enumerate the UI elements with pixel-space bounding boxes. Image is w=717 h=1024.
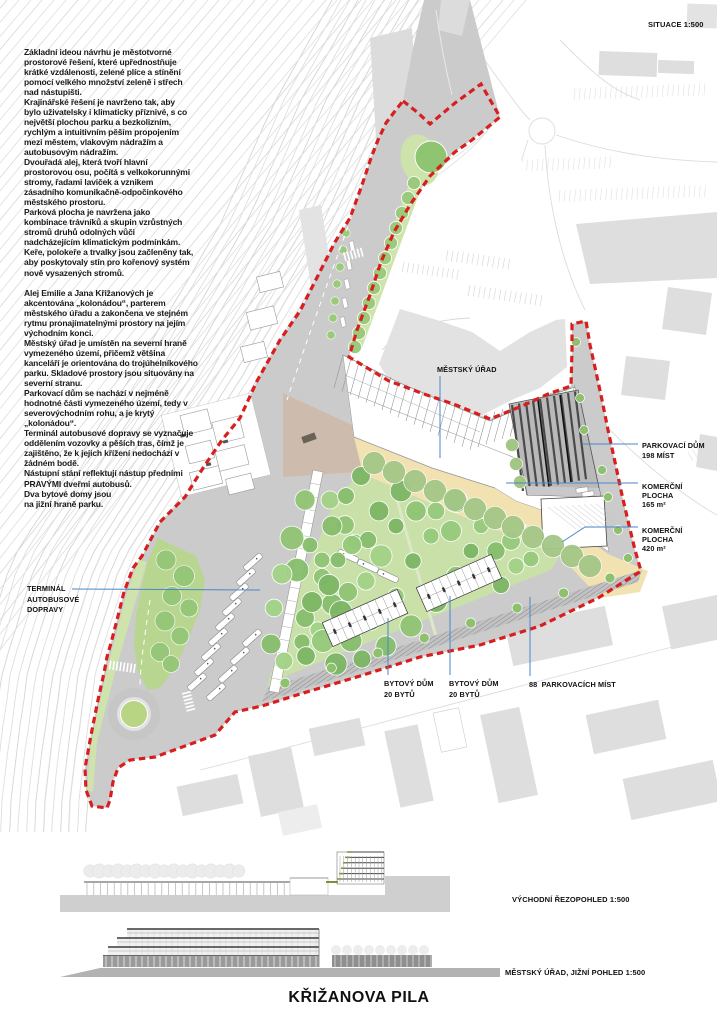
svg-text:BYTOVÝ DŮM: BYTOVÝ DŮM [449, 678, 499, 688]
svg-text:198 MÍST: 198 MÍST [642, 451, 675, 460]
svg-text:20 BYTŮ: 20 BYTŮ [449, 689, 480, 699]
svg-text:KOMERČNÍ: KOMERČNÍ [642, 526, 683, 535]
svg-text:DOPRAVY: DOPRAVY [27, 605, 63, 614]
svg-text:TERMINÁL: TERMINÁL [27, 584, 66, 593]
svg-text:AUTOBUSOVÉ: AUTOBUSOVÉ [27, 595, 79, 604]
svg-text:PLOCHA: PLOCHA [642, 535, 674, 544]
svg-text:MĚSTSKÝ ÚŘAD: MĚSTSKÝ ÚŘAD [437, 365, 497, 374]
svg-text:KOMERČNÍ: KOMERČNÍ [642, 482, 683, 491]
svg-text:PLOCHA: PLOCHA [642, 491, 674, 500]
svg-text:420 m²: 420 m² [642, 544, 666, 553]
svg-text:165 m²: 165 m² [642, 500, 666, 509]
svg-text:BYTOVÝ DŮM: BYTOVÝ DŮM [384, 678, 434, 688]
svg-text:20 BYTŮ: 20 BYTŮ [384, 689, 415, 699]
svg-text:MĚSTSKÝ ÚŘAD, JIŽNÍ POHLED 1:5: MĚSTSKÝ ÚŘAD, JIŽNÍ POHLED 1:500 [505, 968, 645, 977]
svg-text:VÝCHODNÍ ŘEZOPOHLED 1:500: VÝCHODNÍ ŘEZOPOHLED 1:500 [512, 895, 630, 904]
svg-text:KŘIŽANOVA PILA: KŘIŽANOVA PILA [288, 987, 429, 1006]
svg-text:PARKOVACÍ DŮM: PARKOVACÍ DŮM [642, 440, 705, 450]
svg-text:SITUACE 1:500: SITUACE 1:500 [648, 20, 704, 29]
svg-text:88 PARKOVACÍCH MÍST: 88 PARKOVACÍCH MÍST [529, 680, 616, 689]
